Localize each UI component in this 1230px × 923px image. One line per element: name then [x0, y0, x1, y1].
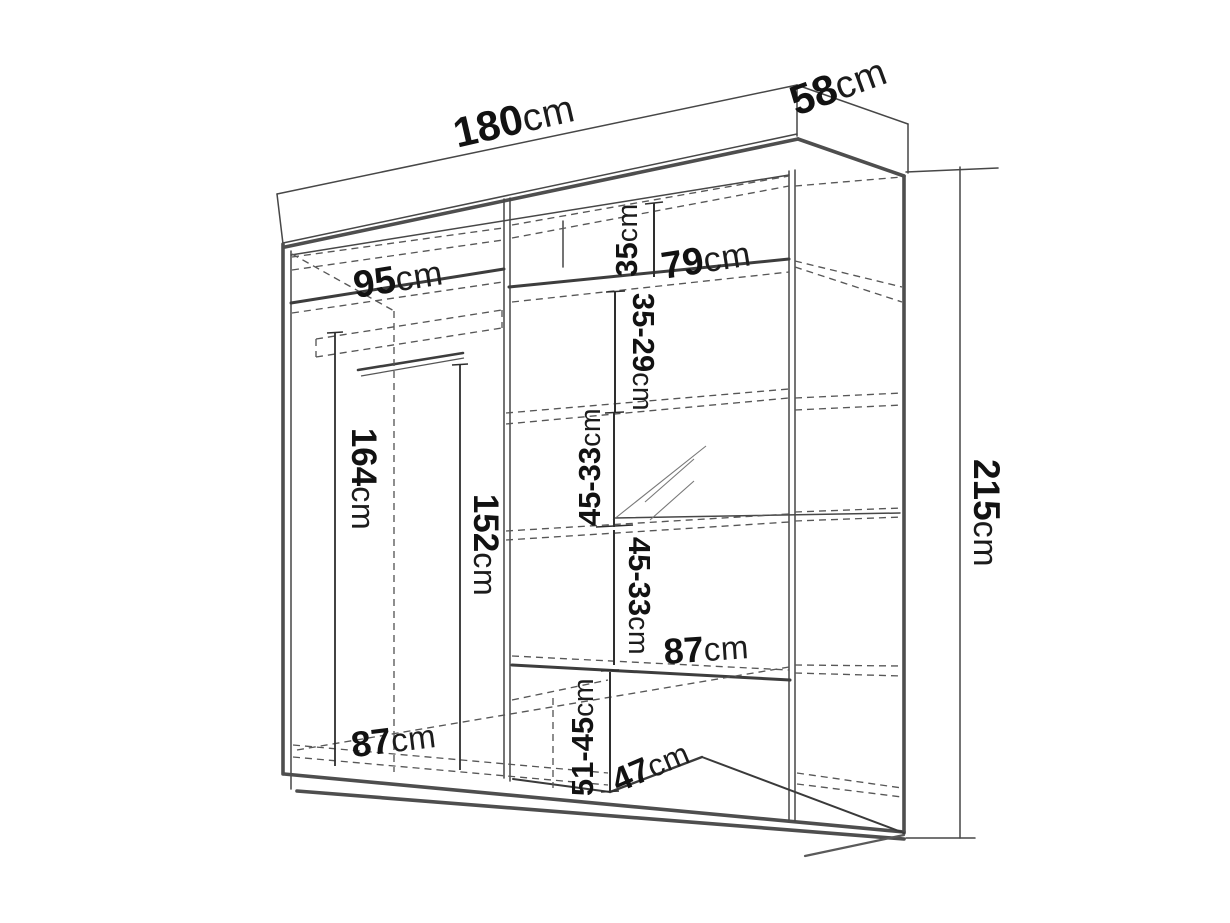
dim-shelf-gap-3-label: 45-33cm	[622, 537, 657, 655]
dim-bottom-shelf-depth-label: 47cm	[606, 734, 695, 800]
dim-hanging-height-left-label: 164cm	[344, 428, 383, 530]
dim-top-compartment-height-label: 35cm	[609, 203, 644, 277]
dim-shelf-gap-2-label: 45-33cm	[572, 408, 607, 526]
dim-top-shelf-width-label: 79cm	[658, 232, 753, 288]
dim-height-label: 215cm	[966, 459, 1007, 567]
mirror-icon	[613, 446, 706, 520]
wardrobe-dimension-diagram: 180cm 58cm 215cm 95cm 79cm 35cm 35-29cm …	[0, 0, 1230, 923]
dim-right-shelf-width-label: 87cm	[662, 625, 750, 672]
dim-shelf-gap-1-label: 35-29cm	[626, 293, 661, 411]
dim-width-label: 180cm	[449, 83, 579, 156]
diagram-canvas: 180cm 58cm 215cm 95cm 79cm 35cm 35-29cm …	[0, 0, 1230, 923]
dim-hanging-height-right-label: 152cm	[466, 494, 505, 596]
dim-bottom-compartment-height-label: 51-45cm	[565, 678, 600, 796]
